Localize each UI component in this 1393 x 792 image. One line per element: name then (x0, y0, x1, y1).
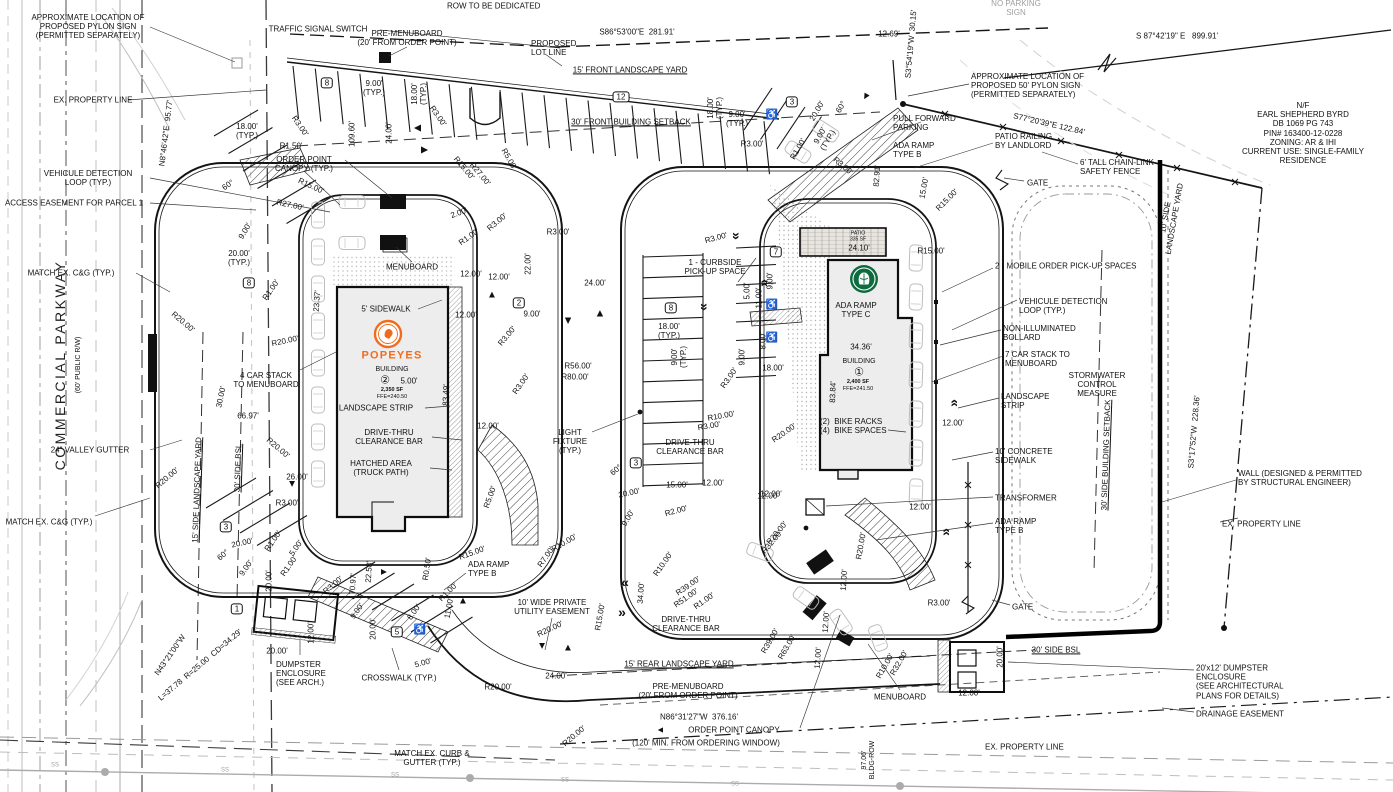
side-landscape-note: 15' SIDE LANDSCAPE YARD (191, 437, 204, 543)
landscape-strip-note: LANDSCAPE STRIP (339, 403, 413, 412)
truck-path-note: HATCHED AREA (TRUCK PATH) (350, 459, 412, 477)
plan-label: 60° (220, 178, 235, 192)
plan-label: R80.00' (561, 372, 588, 381)
plan-label: 66.97' (237, 411, 259, 420)
arrow-icon: ▲ (563, 314, 574, 327)
building-2-ffe: FFE=240.50 (377, 394, 407, 400)
plan-label: R3.00' (697, 419, 721, 432)
plan-label: 9.00' (TYP.) (363, 79, 385, 97)
plan-label: 8.00' (405, 602, 422, 621)
arrow-icon: ▲ (417, 144, 431, 156)
plan-label: 9.00' (620, 508, 637, 527)
side-setback-note: 30' SIDE BUILDING SETBACK (1099, 399, 1112, 510)
plan-label: 5.00' (414, 656, 433, 669)
plan-label: R27.00' (276, 198, 305, 213)
bearing-west: N8°46'42"E 95.77' (157, 99, 174, 167)
match-curb-note: MATCH EX. CURB & GUTTER (TYP.) (394, 749, 469, 767)
plan-label: 70.97' (348, 573, 359, 595)
building-2-area: 2,350 SF (381, 387, 403, 393)
concrete-sidewalk-note: 10' CONCRETE SIDEWALK (995, 447, 1053, 465)
plan-label: R1.00' (788, 137, 807, 161)
sewer-line-text: SS (221, 768, 229, 775)
plan-label: R56.00' (564, 361, 591, 370)
curve-bearing: N43°21'00"W (153, 633, 188, 677)
plan-label: 20.00' (TYP.) (228, 249, 250, 267)
dumpster-note: DUMPSTER ENCLOSURE (SEE ARCH.) (276, 660, 326, 688)
menuboard-note: MENUBOARD (874, 692, 926, 701)
plan-label: 20.00' (995, 646, 1004, 668)
pylon-50-note: APPROXIMATE LOCATION OF PROPOSED 50' PYL… (971, 72, 1084, 100)
patio-railing-note: PATIO RAILING BY LANDLORD (995, 132, 1052, 150)
plan-label: 12.00' (702, 478, 724, 487)
plan-label: R1.00' (261, 278, 282, 302)
plan-label: R2.00' (664, 504, 688, 519)
plan-label: R0.50' (421, 557, 433, 581)
plan-label: 9.00' (237, 558, 254, 577)
plan-label: R20.00' (170, 310, 197, 335)
plan-label: R20.00' (536, 619, 565, 639)
plan-label: 20.00' (266, 646, 288, 655)
front-landscape-note: 15' FRONT LANDSCAPE YARD (573, 65, 687, 74)
mobile-order-note: 2 - MOBILE ORDER PICK-UP SPACES (995, 261, 1137, 270)
crosswalk-note: CROSSWALK (TYP.) (361, 673, 436, 682)
rear-landscape-note: 15' REAR LANDSCAPE YARD (624, 659, 733, 668)
plan-label: R1.00' (263, 529, 284, 553)
plan-label: 9.00' (TYP.) (726, 110, 748, 128)
vehicle-loop-note: VEHICULE DETECTION LOOP (TYP.) (1019, 297, 1107, 315)
arrow-icon: ▲ (595, 308, 606, 321)
plan-label: 12.00' (813, 647, 824, 669)
plan-label: 20.00' (618, 486, 641, 499)
chevron-icon: » (697, 303, 713, 311)
bearing-east: S3°17'52"W 228.36' (1186, 395, 1202, 469)
building-1-area: 2,400 SF (847, 379, 869, 385)
ada-symbol-icon: ♿ (766, 299, 778, 311)
plan-label: R5.00' (482, 485, 498, 510)
drainage-easement-note: DRAINAGE EASEMENT (1196, 709, 1284, 718)
ada-symbol-icon: ♿ (414, 624, 426, 636)
ada-ramp-note: ADA RAMP TYPE B (468, 560, 509, 578)
building-1-number: ① (854, 367, 864, 380)
plan-label: R3.00' (290, 114, 311, 138)
chevron-icon: » (618, 604, 626, 620)
plan-label: 24.00' (584, 278, 606, 287)
plan-label: R15.00' (917, 246, 944, 255)
plan-label: R10.00' (550, 532, 578, 554)
plan-label: R20.00' (770, 421, 798, 444)
bearing-north: S86°53'00"E 281.91' (599, 27, 674, 36)
pre-menuboard-note: PRE-MENUBOARD (20' FROM ORDER POINT) (357, 29, 456, 47)
building-2-label: BUILDING (375, 366, 408, 374)
plan-label: R15.00' (934, 187, 960, 213)
plan-label: 5.00' (742, 282, 751, 299)
plan-label: 2.00' (449, 206, 468, 220)
side-bsl-note: 30' SIDE BSL (233, 444, 244, 493)
plan-label: 24.10' (848, 243, 870, 252)
stall-count: 1 (231, 603, 243, 614)
popeyes-wordmark: POPEYES (362, 350, 423, 363)
plan-label: 12.00' (839, 569, 850, 591)
stall-count: 7 (770, 246, 782, 257)
car-stack-note: 4 CAR STACK TO MENUBOARD (233, 371, 298, 389)
bollard-note: NON-ILLUMINATED BOLLARD (1003, 324, 1076, 342)
plan-label: 18.00' (762, 363, 784, 372)
plan-label: R3.00' (928, 598, 951, 607)
menuboard-note: MENUBOARD (386, 262, 438, 271)
bike-racks-note: (2) BIKE RACKS (4) BIKE SPACES (820, 417, 887, 435)
arrow-icon: ▲ (287, 477, 297, 489)
order-point-canopy-note: ORDER POINT CANOPY (688, 725, 779, 734)
building-1-label: BUILDING (842, 358, 875, 366)
dumpster-note: 20'x12' DUMPSTER ENCLOSURE (SEE ARCHITEC… (1196, 664, 1284, 701)
plan-label: 34.36' (850, 342, 872, 351)
plan-label: 11.00' (443, 597, 456, 619)
plan-label: 15.00' (666, 480, 688, 489)
plan-label: 20.00' (264, 570, 273, 592)
plan-label: 9.00' (TYP.) (811, 124, 838, 152)
plan-label: R15.00' (297, 176, 326, 196)
plan-label: 12.00' (488, 272, 510, 281)
gate-note: GATE (1012, 602, 1033, 611)
plan-label: R3.00' (496, 324, 518, 347)
clearance-bar-note: DRIVE-THRU CLEARANCE BAR (656, 438, 724, 456)
plan-label: R20.00' (271, 334, 300, 349)
transformer-note: TRANSFORMER (995, 493, 1057, 502)
bearing-northeast: S 87°42'19" E 899.91' (1136, 31, 1218, 40)
side-bsl-note: 30' SIDE BSL (1032, 645, 1081, 654)
arrow-icon: ▲ (859, 89, 873, 104)
sewer-line-text: SS (391, 773, 399, 780)
arrow-icon: ▲ (563, 642, 573, 654)
clearance-bar-note: DRIVE-THRU CLEARANCE BAR (652, 615, 720, 633)
plan-label: R3.00' (547, 227, 570, 236)
plan-label: R3.00' (719, 366, 740, 390)
curve-data: L=37.78 R=25.00 CD=34.29' (156, 627, 243, 702)
plan-label: R1.00' (457, 227, 481, 248)
plan-label: 12.00' (909, 502, 931, 511)
ex-property-line-note: EX. PROPERTY LINE (985, 742, 1064, 751)
plan-label: 11.00' (754, 288, 763, 309)
chevron-icon: » (945, 399, 961, 407)
stall-count: 8 (321, 77, 333, 88)
front-setback-note: 30' FRONT BUILDING SETBACK (571, 117, 691, 126)
plan-label: R1.50' (280, 141, 303, 150)
plan-label: 83.49' (441, 384, 451, 406)
plan-label: R3.00' (831, 155, 854, 177)
plan-label: R3.00' (511, 372, 532, 396)
plan-label: 9.00' (737, 348, 746, 365)
plan-label: R20.00' (484, 682, 511, 691)
chevron-icon: » (755, 279, 771, 287)
ex-property-line-note: EX. PROPERTY LINE (1222, 519, 1301, 528)
pull-forward-note: PULL FORWARD PARKING (893, 114, 956, 132)
building-1-ffe: FFE=241.50 (843, 386, 873, 392)
sewer-line-text: SS (561, 778, 569, 785)
match-cg-note: MATCH EX. C&G (TYP.) (6, 517, 93, 526)
stall-count: 8 (665, 302, 677, 313)
plan-label: 60° (215, 548, 230, 563)
curbside-pickup-note: 1 - CURBSIDE PICK-UP SPACE (684, 258, 745, 276)
plan-label: 30.00' (214, 386, 227, 409)
plan-label: R39.00' (759, 627, 781, 655)
arrow-icon: ▲ (377, 567, 389, 577)
stall-count: 12 (613, 91, 630, 102)
plan-label: R1.00' (279, 554, 300, 578)
arrow-icon: ▲ (458, 595, 468, 607)
light-fixture-note: LIGHT FIXTURE (TYP.) (553, 428, 587, 456)
plan-label: 12.69' (878, 29, 900, 38)
plan-label: R10.00' (651, 550, 674, 578)
no-parking-sign-note: NO PARKING SIGN (991, 0, 1041, 17)
plan-label: R3.00' (741, 139, 764, 148)
stall-count: 3 (786, 96, 798, 107)
plan-label: 12.00' (306, 622, 315, 644)
plan-label: R3.00' (276, 498, 299, 507)
pre-menuboard-note: PRE-MENUBOARD (20' FROM ORDER POINT) (638, 682, 737, 700)
plan-label: 34.00' (636, 582, 647, 604)
plan-label: 60° (608, 463, 623, 478)
landscape-strip-note: LANDSCAPE STRIP (1001, 392, 1049, 410)
plan-label: 12.00' (477, 421, 499, 430)
gate-note: GATE (1027, 178, 1048, 187)
pylon-sign-note: APPROXIMATE LOCATION OF PROPOSED PYLON S… (31, 13, 144, 41)
plan-label: 18.00' (TYP.) (658, 322, 680, 340)
plan-label: R20.00' (561, 724, 588, 749)
plan-label: 5.00' (400, 376, 417, 385)
plan-label: R3.00' (428, 104, 449, 128)
plan-label: 12.00' (942, 418, 964, 427)
clearance-bar-note: DRIVE-THRU CLEARANCE BAR (355, 428, 423, 446)
plan-label: 12.00' (460, 269, 482, 278)
row-dedicated-note: ROW TO BE DEDICATED (447, 1, 540, 10)
stall-count: 5 (391, 626, 403, 637)
chevron-icon: » (729, 232, 745, 240)
arrow-icon: ▲ (655, 726, 665, 735)
car-stack-note: 7 CAR STACK TO MENUBOARD (1005, 350, 1070, 368)
plan-label: 12.00' (455, 310, 477, 319)
bearing-ne: S3°54'19"W 30.15' (903, 9, 918, 78)
plan-label: 20.00' (231, 536, 254, 549)
patio-label: PATIO 335 SF (850, 231, 866, 243)
plan-label: 18.00' (TYP.) (706, 97, 724, 119)
bldg-row-dim: 97.06' BLDG-ROW (861, 741, 877, 780)
plan-label: R20.00' (154, 466, 181, 491)
ada-ramp-note: ADA RAMP TYPE B (995, 517, 1036, 535)
match-cg-note: MATCH EX. C&G (TYP.) (28, 268, 115, 277)
lot-line-note: PROPOSED LOT LINE (531, 39, 576, 57)
plan-label: 24.00' (384, 122, 393, 144)
plan-label: 109.60' (347, 121, 356, 147)
plan-label: R3.00' (485, 211, 508, 233)
wall-note: WALL (DESIGNED & PERMITTED BY STRUCTURAL… (1238, 469, 1362, 487)
stall-count: 3 (220, 521, 232, 532)
stormwater-note: STORMWATER CONTROL MEASURE (1069, 371, 1126, 399)
sidewalk-note: 5' SIDEWALK (361, 304, 410, 313)
ada-ramp-note: ADA RAMP TYPE B (893, 141, 934, 159)
ada-symbol-icon: ♿ (766, 109, 778, 121)
plan-label: 9.00' (348, 601, 365, 620)
stall-count: 3 (630, 457, 642, 468)
plan-label: 82.91' (872, 165, 883, 187)
plan-label: 22.58' (364, 561, 375, 583)
vehicle-loop-note: VEHICULE DETECTION LOOP (TYP.) (44, 169, 132, 187)
plan-label: R5.00' (499, 147, 518, 171)
annotation-layer: APPROXIMATE LOCATION OF PROPOSED PYLON S… (0, 0, 1393, 792)
plan-label: 12.00' (958, 688, 980, 697)
ada-ramp-note: ADA RAMP TYPE C (835, 301, 876, 319)
arrow-icon: ▲ (487, 289, 497, 301)
plan-label: 15.00' (918, 177, 931, 200)
plan-label: 60° (834, 99, 848, 114)
plan-label: R20.00' (265, 436, 292, 461)
plan-label: 24.00' (545, 671, 567, 680)
sewer-line-text: SS (731, 782, 739, 789)
ada-symbol-icon: ♿ (766, 332, 778, 344)
sewer-line-text: SS (51, 763, 59, 770)
bearing-south: N86°31'27"W 376.16' (660, 712, 738, 721)
utility-easement-note: 10' WIDE PRIVATE UTILITY EASEMENT (514, 598, 590, 616)
arrow-icon: ▲ (537, 639, 547, 651)
plan-label: R63.00' (776, 633, 798, 661)
plan-label: 12.00' (757, 491, 779, 500)
stall-count: 2 (513, 297, 525, 308)
arrow-icon: ▲ (411, 122, 425, 134)
plan-label: 23.37' (312, 290, 323, 312)
adjacent-owner-block: N/F EARL SHEPHERD BYRD DB 1069 PG 743 PI… (1242, 101, 1364, 165)
commercial-parkway-street-name: COMMERCIAL PARKWAY (52, 260, 68, 471)
plan-label: 20.00' (368, 618, 377, 640)
side-landscape-note: 10' SIDE LANDSCAPE YARD (1155, 181, 1186, 255)
valley-gutter-note: 24" VALLEY GUTTER (51, 445, 130, 454)
plan-label: R3.00' (321, 574, 344, 596)
stall-count: 8 (243, 277, 255, 288)
plan-label: R15.00' (593, 603, 607, 632)
ordering-window-note: (120' MIN. FROM ORDERING WINDOW) (632, 738, 780, 747)
chevron-icon: » (937, 528, 953, 536)
plan-label: 83.84' (828, 381, 838, 403)
chevron-icon: « (621, 574, 629, 590)
plan-label: 9.00' (237, 221, 254, 240)
plan-label: R3.00' (704, 231, 728, 246)
plan-label: 22.00' (523, 253, 532, 275)
plan-label: 9.00' (523, 309, 540, 318)
order-point-canopy-note: ORDER POINT CANOPY (TYP.) (275, 155, 333, 173)
plan-label: 20.00' (808, 99, 827, 122)
street-row-note: (60' PUBLIC R/W) (75, 337, 83, 394)
site-plan-canvas: APPROXIMATE LOCATION OF PROPOSED PYLON S… (0, 0, 1393, 792)
fence-note: 6' TALL CHAIN-LINK SAFETY FENCE (1080, 158, 1154, 176)
ex-property-line-note: EX. PROPERTY LINE (54, 95, 133, 104)
traffic-signal-note: TRAFFIC SIGNAL SWITCH (269, 24, 368, 33)
plan-label: 9.00' (TYP.) (670, 346, 688, 368)
plan-label: 18.00' (TYP.) (236, 122, 258, 140)
plan-label: R20.00' (854, 532, 868, 561)
plan-label: 12.00' (821, 611, 832, 633)
access-easement-note: ACCESS EASEMENT FOR PARCEL 1 (5, 198, 143, 207)
plan-label: 18.00' (TYP.) (410, 83, 428, 105)
building-2-number: ② (380, 375, 390, 388)
